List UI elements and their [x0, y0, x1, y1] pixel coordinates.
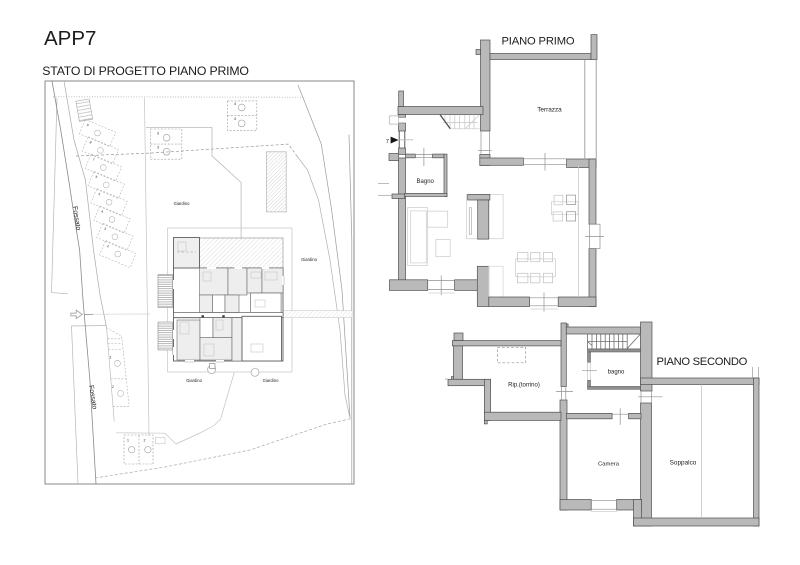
svg-text:Giardino: Giardino — [186, 378, 202, 383]
svg-text:3: 3 — [157, 146, 159, 150]
svg-text:Soppalco: Soppalco — [670, 460, 697, 467]
svg-text:1: 1 — [127, 439, 129, 443]
svg-text:Bagno: Bagno — [417, 179, 435, 185]
svg-text:2: 2 — [112, 385, 114, 389]
svg-text:Giardino: Giardino — [174, 201, 190, 206]
svg-text:bagno: bagno — [608, 369, 625, 375]
svg-text:3: 3 — [157, 132, 159, 136]
svg-text:Giardino: Giardino — [301, 257, 317, 262]
svg-text:2: 2 — [144, 439, 146, 443]
svg-text:2: 2 — [110, 356, 112, 360]
svg-text:7: 7 — [386, 139, 389, 145]
svg-text:PIANO SECONDO: PIANO SECONDO — [657, 356, 748, 368]
svg-text:Giardino: Giardino — [263, 378, 279, 383]
svg-text:PIANO PRIMO: PIANO PRIMO — [502, 35, 575, 47]
svg-text:APP7: APP7 — [44, 27, 96, 50]
svg-text:STATO DI PROGETTO PIANO PRIMO: STATO DI PROGETTO PIANO PRIMO — [42, 64, 248, 78]
svg-text:Terrazza: Terrazza — [537, 106, 562, 113]
svg-text:Rip.(torrino): Rip.(torrino) — [508, 382, 540, 388]
svg-text:4: 4 — [234, 102, 236, 106]
svg-text:4: 4 — [234, 117, 236, 121]
svg-text:Camera: Camera — [598, 461, 620, 467]
